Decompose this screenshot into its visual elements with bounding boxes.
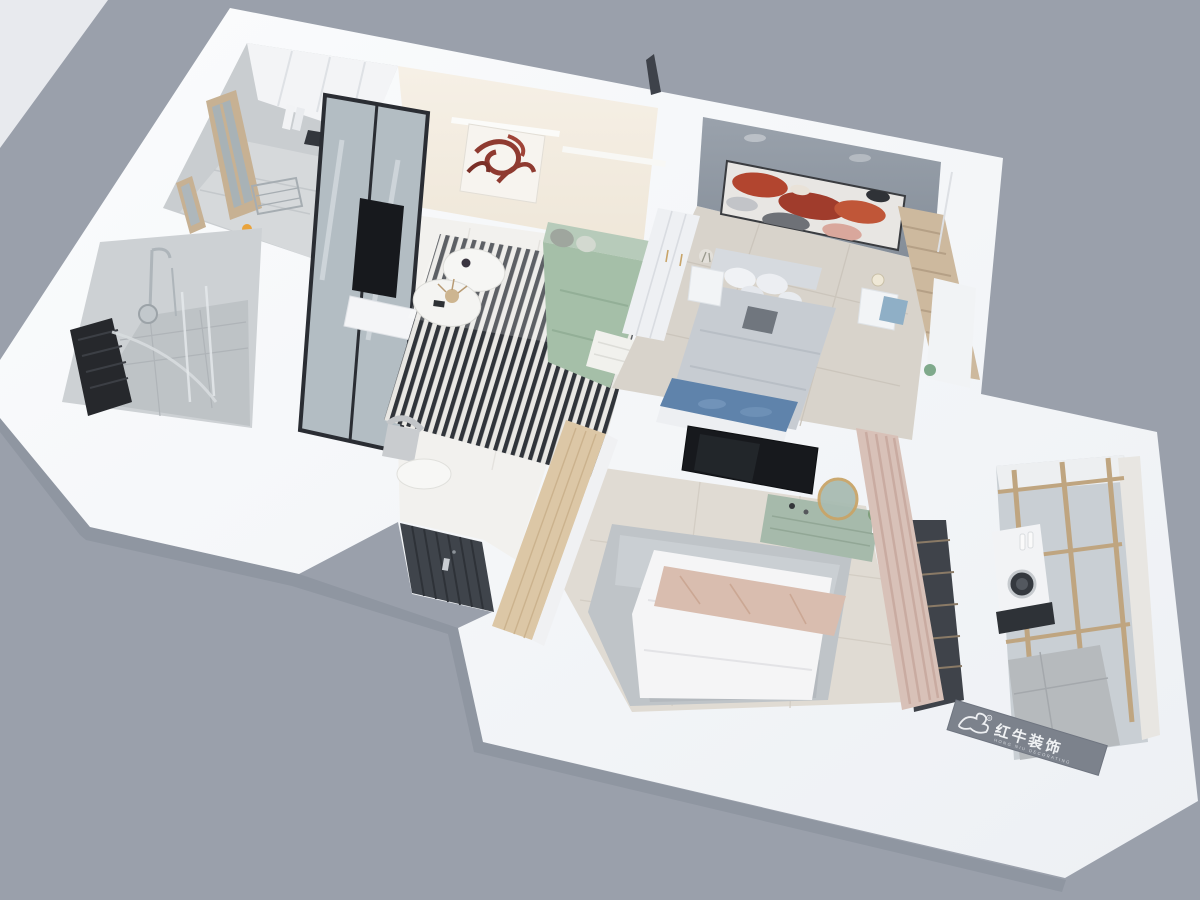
ceiling-light-glow-2 bbox=[849, 154, 871, 162]
makeup-items bbox=[789, 503, 795, 509]
dining-chair bbox=[382, 424, 420, 462]
floorplan-render: ® 红牛装饰 HONG NIU DECORATING bbox=[0, 0, 1200, 900]
render-stage: ® 红牛装饰 HONG NIU DECORATING bbox=[0, 0, 1200, 900]
flower-bouquet bbox=[699, 249, 713, 263]
gold-round-mirror bbox=[819, 479, 857, 519]
washer-drum bbox=[1016, 578, 1028, 590]
tv-living bbox=[352, 198, 404, 298]
blue-cushion bbox=[879, 296, 908, 325]
green-vase bbox=[924, 364, 936, 376]
balcony bbox=[992, 455, 1160, 760]
dining-table bbox=[397, 459, 451, 489]
shower-head bbox=[139, 305, 157, 323]
ceiling-light-glow bbox=[744, 134, 766, 142]
radiator-bar-1 bbox=[1020, 534, 1025, 550]
table-lamp bbox=[872, 274, 884, 286]
dried-plant bbox=[445, 289, 459, 303]
radiator-bar-2 bbox=[1028, 532, 1033, 548]
abstract-art-living bbox=[460, 124, 545, 203]
nightstand-left bbox=[688, 266, 724, 306]
table-vase bbox=[462, 259, 471, 268]
runner-pattern-2 bbox=[740, 407, 772, 417]
door-peephole bbox=[452, 550, 456, 554]
runner-pattern bbox=[698, 399, 726, 409]
makeup-items-2 bbox=[804, 510, 809, 515]
